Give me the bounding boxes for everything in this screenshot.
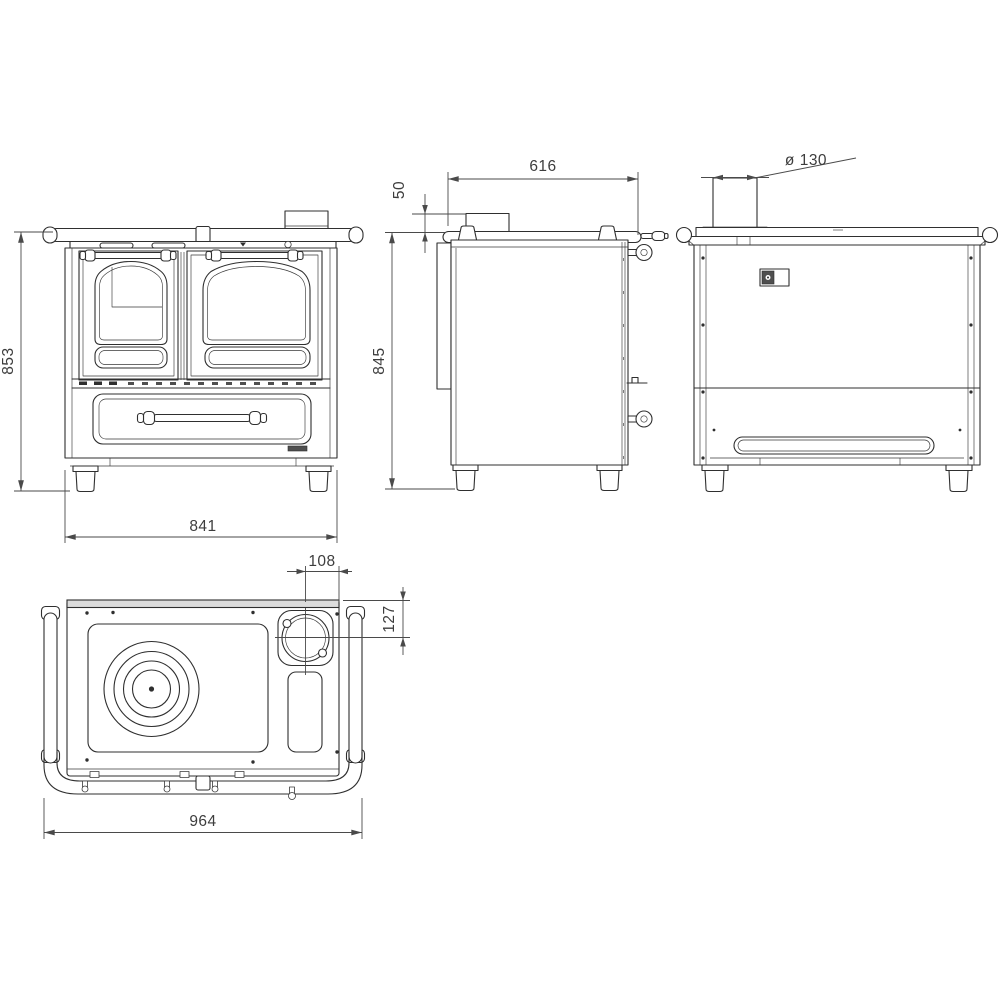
rail-center-joint xyxy=(196,227,210,243)
dim-front-height: 853 xyxy=(0,232,70,491)
vent-slot xyxy=(152,243,185,248)
top-rail-right xyxy=(347,607,365,764)
wood-drawer xyxy=(93,394,311,451)
side-feet xyxy=(453,465,622,491)
vent-slot xyxy=(100,243,133,248)
dim-label-108: 108 xyxy=(308,553,335,570)
side-view: 616 50 845 xyxy=(371,158,668,491)
front-view: 853 841 xyxy=(0,211,363,543)
side-door-knob-top xyxy=(628,245,652,261)
collar-screw xyxy=(319,649,327,657)
rail-center-joint xyxy=(196,776,210,790)
dim-label-845: 845 xyxy=(371,347,388,374)
dim-label-616: 616 xyxy=(529,158,556,175)
front-top-rail xyxy=(43,227,363,244)
rail-knob-right xyxy=(983,228,998,243)
rear-view: ø 130 xyxy=(677,152,998,492)
dim-label-964: 964 xyxy=(189,813,216,830)
side-latch xyxy=(627,378,647,384)
rear-edge-strip xyxy=(67,600,339,608)
rail-end-left xyxy=(43,227,57,243)
rail-end-right xyxy=(349,227,363,243)
dim-label-841: 841 xyxy=(189,518,216,535)
front-base xyxy=(70,458,334,492)
front-handle-knobs xyxy=(82,781,296,800)
foot-right xyxy=(306,466,331,492)
handle-rod xyxy=(641,234,653,239)
pilot-hole xyxy=(285,241,291,247)
dim-label-flue-diameter: ø 130 xyxy=(785,152,827,169)
rear-body xyxy=(694,245,980,465)
dim-flue-to-side: 108 xyxy=(287,553,352,602)
dim-flue-diameter: ø 130 xyxy=(701,152,856,180)
side-door-knob-bottom xyxy=(628,411,652,427)
handle-knob xyxy=(652,232,665,241)
brand-badge xyxy=(288,446,307,451)
stove-drawing-svg: 853 841 xyxy=(0,0,1000,1000)
rear-feet xyxy=(702,465,972,492)
junction-box xyxy=(760,269,789,286)
side-body xyxy=(451,240,628,465)
front-flue-box xyxy=(285,211,328,230)
rail-knob-left xyxy=(677,228,692,243)
technical-drawing-page: 853 841 xyxy=(0,0,1000,1000)
top-rail-left xyxy=(42,607,60,764)
dim-label-127: 127 xyxy=(381,605,398,632)
dim-overall-width: 964 xyxy=(44,798,362,839)
top-view: 108 127 964 xyxy=(42,553,411,839)
dim-label-50: 50 xyxy=(391,181,408,199)
collar-screw xyxy=(283,620,291,628)
rear-heat-shield xyxy=(437,243,451,389)
dim-label-853: 853 xyxy=(0,347,17,374)
dim-front-width: 841 xyxy=(65,470,337,543)
warming-plate xyxy=(288,672,322,752)
front-cooktop-edge xyxy=(70,241,336,248)
foot-left xyxy=(73,466,98,492)
